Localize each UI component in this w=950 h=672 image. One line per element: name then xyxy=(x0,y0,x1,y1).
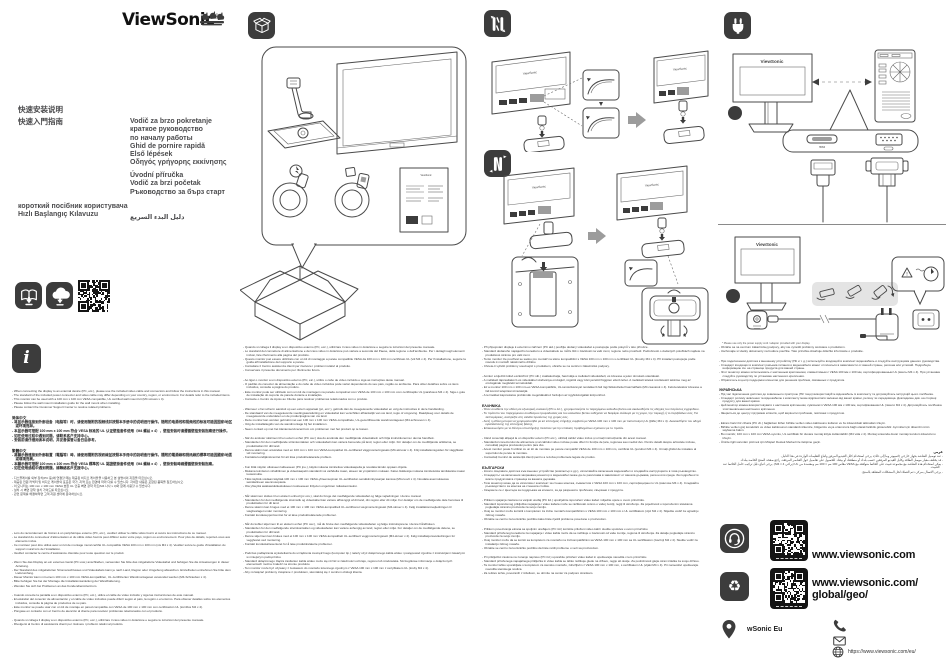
cover-title-line: Vodič za brzi početak xyxy=(130,180,225,188)
notes-item: O padrão do conector de alimentação e do… xyxy=(243,383,467,390)
notes-item: Kontakt kundestøttesenteret for å løse p… xyxy=(243,543,467,547)
notes-item: Зверніться до центру підтримки клієнтів,… xyxy=(719,412,943,416)
notes-item: Aby rozwiązać problemy związane z produk… xyxy=(243,571,467,575)
cover-titles-cjk: 快速安装说明快速入門指南 xyxy=(18,104,63,127)
website-globe-icon xyxy=(832,645,844,663)
notes-item: Neem contact op met het klantenservicece… xyxy=(243,428,467,432)
notes-block: Wenn Sie das Display an ein externes Ger… xyxy=(12,561,233,588)
cover-title-line: краткое руководство xyxy=(130,126,227,134)
location-pin-icon xyxy=(722,620,736,644)
notes-block: Amikor a kijelzőt külső eszközhöz (PC st… xyxy=(482,375,706,398)
notes-block: При подключении дисплея к внешнему устро… xyxy=(719,360,943,383)
cover-title-line: Úvodní příručka xyxy=(130,172,225,180)
section-divider xyxy=(718,224,946,225)
notes-block: Kun liität näytön ulkoiseen laitteeseen … xyxy=(243,466,467,489)
notes-block: Wanneer u het scherm aansluit op een ext… xyxy=(243,408,467,431)
notes-block: Când conectați afișajul la un dispozitiv… xyxy=(482,437,706,460)
notes-item: يمكن استخدام هذه الشاشة مع مجموعة تثبيت … xyxy=(719,463,943,470)
power-connect-icon xyxy=(724,12,751,39)
notes-block: ΕΛΛΗΝΙΚΑΌταν συνδέετε την οθόνη σε εξωτε… xyxy=(482,404,706,431)
notes-item: 관련 문제를 해결하려면 고객 지원 센터에 문의하십시오. xyxy=(12,493,233,497)
cover-title-line: по началу работы xyxy=(130,135,227,143)
notes-item: 安装前请仔细阅读本说明，并妥善保管以备日后参考。 xyxy=(12,438,233,442)
notes-block: Podczas podłączania wyświetlacza do urzą… xyxy=(243,552,467,575)
notes-item: Wenden Sie sich bei Problemen an das Kun… xyxy=(12,585,233,589)
notes-item: Kontakta kundtjänstcentret för att lösa … xyxy=(243,456,467,460)
cover-title-line: Első lépések xyxy=(130,151,227,159)
notes-item: Contacte o Centro de Apoio ao Cliente pa… xyxy=(243,398,467,402)
geo-url-line1: www.viewsonic.com/ xyxy=(812,578,918,590)
attach-stand-diagram: ViewSonic ViewSonic xyxy=(482,44,710,152)
notes-item: Póngase en contacto con el Centro de ate… xyxy=(12,610,233,614)
geo-url-line2: global/geo/ xyxy=(812,590,918,602)
location-label: wSonic Eu xyxy=(747,626,782,633)
notes-column-1: When connecting the display to an extern… xyxy=(12,390,233,633)
notes-item: Ota yhteyttä asiakastukikeskukseen tuott… xyxy=(243,485,467,489)
quick-start-guide-sheet: ViewSonic® 快速安装说明快速入門指南 Vodič za brzo po… xyxy=(0,0,950,672)
notes-item: Chcete-li vyřešit problémy související s… xyxy=(482,365,706,369)
cover-title-line: 快速入門指南 xyxy=(18,116,63,128)
manual-download-icon xyxy=(15,282,42,309)
notes-block: Når skærmen sluttes til en ekstern enhed… xyxy=(243,495,467,518)
cover-title-line: Hızlı Başlangıç Kılavuzu xyxy=(18,211,128,219)
svg-text:ViewSonic: ViewSonic xyxy=(532,184,547,189)
download-qr-code xyxy=(78,280,110,312)
notes-column-4: Obráťte sa na centrum zákazníckej podpor… xyxy=(719,346,943,480)
notes-item: 如在使用過程中遇到問題，請聯絡客戶支援中心。 xyxy=(12,466,233,470)
notes-block: 简体中文将显示器连接到外部设备（电脑等）时，请使用随附的视频线并按照本手册中的说… xyxy=(12,416,233,443)
cover-title-line: Ръководство за бърз старт xyxy=(130,189,225,197)
detach-stand-diagram: ViewSonic ViewSonic xyxy=(482,164,710,346)
notes-block: När du ansluter skärmen till en extern e… xyxy=(243,437,467,460)
support-qr-code xyxy=(770,520,808,561)
notes-block: Quando si collega il display a un dispos… xyxy=(243,346,467,373)
notes-item: Uschovajte si všetky dokumenty na budúce… xyxy=(719,350,943,354)
notes-item: Rivolgersi al Centro di assistenza clien… xyxy=(12,623,233,627)
svg-text:!: ! xyxy=(906,272,908,278)
notes-block: Når du kobler skjermen til en ekstern en… xyxy=(243,523,467,546)
notes-block: Pri priključitvi zaslona na zunanjo napr… xyxy=(482,556,706,575)
notes-block: УКРАЇНСЬКАПід час підключення дисплея до… xyxy=(719,388,943,415)
notes-item: Contactați Centrul de asistență clienți … xyxy=(482,456,706,460)
package-contents-diagram: ViewSonic xyxy=(240,40,470,345)
cover-title-line: Οδηγός γρήγορης εκκίνησης xyxy=(130,159,227,167)
cloud-download-icon xyxy=(46,282,73,309)
notes-item: Please contact the Customer Support Cent… xyxy=(12,406,233,410)
svg-text:ViewSonic: ViewSonic xyxy=(673,66,688,71)
notes-item: Kontakt kundesupportcentret for at løse … xyxy=(243,514,467,518)
notes-item: Conservare il presente documento per rif… xyxy=(243,369,467,373)
eco-recycle-icon: ♻ xyxy=(720,572,749,601)
notes-block: Ao ligar o monitor a um dispositivo exte… xyxy=(243,379,467,402)
attach-stand-icon xyxy=(484,10,511,37)
video-connection-diagram: ViewSonic HDMI xyxy=(716,44,948,224)
notes-block: Při připojování displeje k externímu zař… xyxy=(482,346,706,369)
package-contents-icon xyxy=(248,12,275,39)
notes-block: Cuando conecte la pantalla a un disposit… xyxy=(12,594,233,613)
notes-item: Το πρότυπο του παρεχόμενου συνδέσμου τρο… xyxy=(482,412,706,419)
notes-block: Obráťte sa na centrum zákazníckej podpor… xyxy=(719,346,943,354)
website-url: https://www.viewsonic.com/eu/ xyxy=(848,649,916,655)
notes-item: Стандартът на включения захранващ конект… xyxy=(482,474,706,481)
info-icon: i xyxy=(12,344,41,373)
cover-titles-group3: короткий посібник користувачаHızlı Başla… xyxy=(18,203,128,220)
cover-titles-group2: Úvodní příručkaVodič za brzi početakРъко… xyxy=(130,172,225,197)
svg-text:ViewSonic: ViewSonic xyxy=(645,182,660,187)
notes-column-3: Při připojování displeje k externímu zař… xyxy=(482,346,706,582)
notes-block: Prilikom povezivanja ekrana sa spoljnim … xyxy=(482,528,706,551)
cover-title-arabic: دليل البدء السريع xyxy=(130,214,184,222)
svg-text:ViewSonic: ViewSonic xyxy=(761,59,784,64)
doc-brand-label: ViewSonic xyxy=(420,174,432,177)
notes-item: Denne skjermen kan brukes med et 100 mm … xyxy=(243,535,467,542)
geo-url: www.viewsonic.com/ global/geo/ xyxy=(812,578,918,601)
notes-item: Za rešitev težav, povezanih z izdelkom, … xyxy=(482,572,706,576)
notes-column-2: Quando si collega il display a un dispos… xyxy=(243,346,467,581)
cover-title-line: Ghid de pornire rapidă xyxy=(130,143,227,151)
three-birds-logo-icon xyxy=(199,8,225,33)
notes-item: 本显示器可搭配 100 mm x 100 mm 符合 VESA 标准的 UL 认… xyxy=(12,429,233,433)
notes-item: Obratite se centru za korisničku podršku… xyxy=(482,518,706,522)
notes-item: 將顯示器連接到外部裝置（電腦等）時，請使用隨附的視訊線並按照本手冊中的說明進行操… xyxy=(12,453,233,461)
geo-qr-code xyxy=(770,568,808,609)
power-connection-diagram: ViewSonic ! xyxy=(716,230,948,342)
notes-block: БЪЛГАРСКИКогато свързвате дисплея към въ… xyxy=(482,466,706,493)
notes-block: When connecting the display to an extern… xyxy=(12,390,233,410)
notes-item: Ürünle ilgili sorunları çözmek için Müşt… xyxy=(719,441,943,445)
notes-item: يرجى الاتصال بمركز دعم العملاء لحل المشك… xyxy=(719,471,943,475)
notes-block: Ekranı harici bir cihaza (PC vb.) bağlar… xyxy=(719,422,943,445)
svg-text:ViewSonic: ViewSonic xyxy=(756,242,778,247)
notes-block: Quando si collega il display a un dispos… xyxy=(12,619,233,627)
notes-block: 繁體中文將顯示器連接到外部裝置（電腦等）時，請使用隨附的視訊線並按照本手冊中的說… xyxy=(12,449,233,471)
notes-item: Ce moniteur peut être utilisé avec un ki… xyxy=(12,544,233,551)
notes-item: Veuillez contacter le centre d'assistanc… xyxy=(12,552,233,556)
notes-item: Обратитесь в центр поддержки клиентов дл… xyxy=(719,379,943,383)
notes-item: Свържете се с Центъра за поддръжка на кл… xyxy=(482,489,706,493)
notes-item: 将显示器连接到外部设备（电脑等）时，请使用随附的视频线并按照本手册中的说明进行操… xyxy=(12,420,233,428)
notes-item: A termékkel kapcsolatos problémák megold… xyxy=(482,394,706,398)
notes-block: 디스플레이를 외부 장치(PC 등)에 연결할 때는 제공된 비디오 케이블을 … xyxy=(12,477,233,497)
cover-titles-group1: Vodič za brzo pokretanjeкраткое руководс… xyxy=(130,118,227,168)
notes-block: Lors du raccordement de l'écran à un pér… xyxy=(12,532,233,555)
hdmi-port-label: HDMI xyxy=(819,146,825,149)
notes-block: Prilikom spajanja zaslona na vanjski ure… xyxy=(482,499,706,522)
notes-item: Επικοινωνήστε με το Κέντρο υποστήριξης π… xyxy=(482,427,706,431)
notes-item: Obratite se centru za korisničku podršku… xyxy=(482,547,706,551)
cover-title-line: 快速安装说明 xyxy=(18,104,63,116)
cover-title-line: короткий посібник користувача xyxy=(18,203,128,211)
notes-item: Mukana toimitetun virtaliittimen ja vide… xyxy=(243,470,467,477)
notes-block: عربيعند توصيل الشاشة بجهاز خارجي (كمبيوت… xyxy=(719,450,943,474)
support-url: www.viewsonic.com xyxy=(812,550,915,562)
svg-text:ViewSonic: ViewSonic xyxy=(523,70,538,75)
cover-title-line: Vodič za brzo pokretanje xyxy=(130,118,227,126)
support-headset-icon xyxy=(720,524,749,553)
